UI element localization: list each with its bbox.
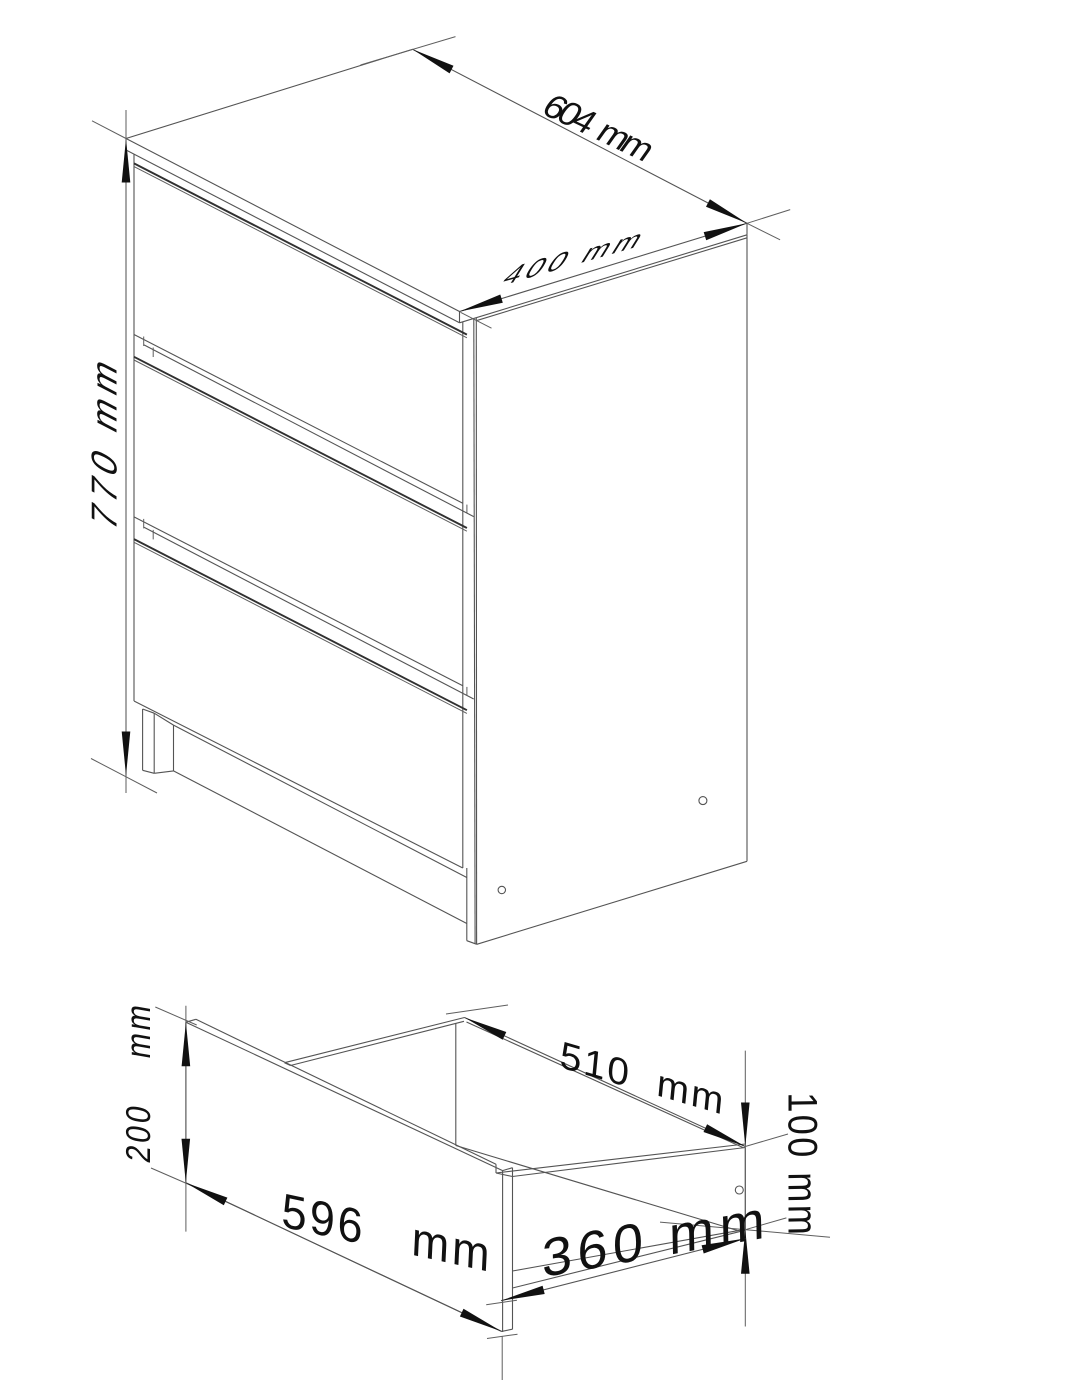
svg-text:604 mm: 604 mm bbox=[535, 87, 661, 168]
svg-text:200 mm: 200 mm bbox=[118, 998, 157, 1165]
svg-text:100 mm: 100 mm bbox=[779, 1092, 825, 1238]
svg-text:360 mm: 360 mm bbox=[541, 1188, 770, 1289]
svg-text:400 mm: 400 mm bbox=[496, 221, 655, 292]
svg-text:596 mm: 596 mm bbox=[280, 1183, 493, 1283]
svg-text:510 mm: 510 mm bbox=[558, 1034, 727, 1124]
svg-text:770 mm: 770 mm bbox=[85, 344, 125, 537]
